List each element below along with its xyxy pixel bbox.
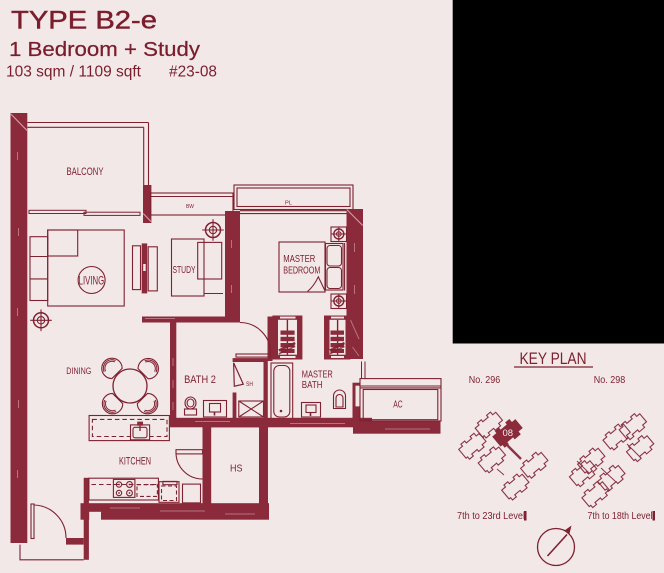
svg-text:HS: HS <box>230 463 243 475</box>
svg-text:LIVING: LIVING <box>79 273 105 287</box>
svg-text:BEDROOM: BEDROOM <box>283 266 320 277</box>
svg-text:1 Bedroom + Study: 1 Bedroom + Study <box>9 38 201 61</box>
svg-text:BW: BW <box>186 204 194 210</box>
svg-text:7th to 23rd Level: 7th to 23rd Level <box>457 511 525 522</box>
svg-text:STUDY: STUDY <box>173 265 196 276</box>
svg-text:DINING: DINING <box>66 366 91 377</box>
svg-text:#23-08: #23-08 <box>169 64 217 81</box>
svg-text:7th to 18th Level: 7th to 18th Level <box>588 511 653 522</box>
svg-text:BALCONY: BALCONY <box>67 166 104 178</box>
svg-text:BATH 2: BATH 2 <box>184 374 216 386</box>
svg-text:MASTER: MASTER <box>302 370 333 381</box>
svg-text:KEY PLAN: KEY PLAN <box>520 349 587 368</box>
svg-text:TYPE B2-e: TYPE B2-e <box>11 7 157 35</box>
svg-text:No. 296: No. 296 <box>469 375 501 386</box>
svg-text:BATH: BATH <box>302 380 323 391</box>
svg-text:PL: PL <box>285 200 293 206</box>
svg-text:08: 08 <box>503 428 514 439</box>
svg-text:AC: AC <box>393 400 403 411</box>
svg-text:KITCHEN: KITCHEN <box>119 456 151 468</box>
svg-text:MASTER: MASTER <box>283 254 315 265</box>
svg-text:103 sqm / 1109 sqft: 103 sqm / 1109 sqft <box>6 64 142 81</box>
svg-text:SH: SH <box>246 381 253 388</box>
svg-text:No. 298: No. 298 <box>594 375 626 386</box>
